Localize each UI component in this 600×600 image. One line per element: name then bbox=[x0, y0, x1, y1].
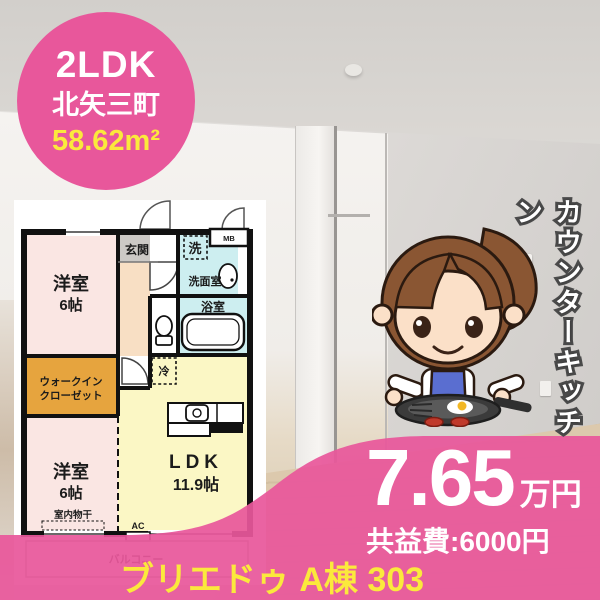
fried-egg-yolk bbox=[458, 402, 467, 411]
bedroom1-label: 洋室 bbox=[53, 273, 89, 294]
ac-box bbox=[126, 532, 150, 541]
location-name: 北矢三町 bbox=[52, 90, 160, 121]
indoor-drying-label: 室内物干 bbox=[54, 509, 93, 521]
eye-highlight bbox=[468, 320, 474, 326]
layout-type: 2LDK bbox=[56, 44, 157, 87]
eye-highlight bbox=[416, 320, 422, 326]
bedroom2-size: 6帖 bbox=[59, 484, 82, 502]
ear-left bbox=[372, 305, 392, 325]
bathroom-label: 浴室 bbox=[201, 299, 225, 314]
washroom-label: 洗面室 bbox=[189, 274, 222, 288]
rent-unit: 万円 bbox=[520, 469, 582, 514]
sink-icon bbox=[219, 264, 237, 288]
photo-left-wall-strip bbox=[0, 300, 14, 600]
washer-label: 洗 bbox=[188, 241, 201, 256]
shoe-left bbox=[425, 418, 443, 427]
floor-plan: 洋室 6帖 ウォークイン クローゼット 洋室 6帖 LDK 11.9帖 玄関 洗… bbox=[14, 200, 266, 585]
closet-label-line1: ウォークイン bbox=[40, 376, 103, 388]
meter-box-label: MB bbox=[223, 234, 235, 243]
hand-left bbox=[386, 389, 402, 405]
toilet-tank bbox=[156, 336, 172, 345]
closet-label-line2: クローゼット bbox=[40, 389, 103, 402]
shoe-right bbox=[451, 418, 469, 427]
smoke-detector-icon bbox=[345, 64, 362, 76]
bedroom2-label: 洋室 bbox=[53, 461, 89, 482]
ldk-size: 11.9帖 bbox=[173, 475, 219, 494]
property-listing-image[interactable]: 洋室 6帖 ウォークイン クローゼット 洋室 6帖 LDK 11.9帖 玄関 洗… bbox=[0, 0, 600, 600]
layout-badge: 2LDK 北矢三町 58.62m² bbox=[17, 12, 195, 190]
bedroom1-area bbox=[24, 232, 118, 356]
vertical-caption: カウンターキッチン bbox=[508, 198, 586, 458]
bedroom1-size: 6帖 bbox=[59, 296, 82, 314]
property-name: ブリエドゥ A棟 303 bbox=[120, 552, 424, 600]
rent-value: 7.65 bbox=[366, 438, 514, 518]
photo-sliding-door bbox=[295, 126, 337, 482]
floor-area: 58.62m² bbox=[52, 125, 160, 158]
entrance-label: 玄関 bbox=[125, 242, 149, 257]
toilet-icon bbox=[156, 316, 172, 336]
kitchen-counter bbox=[168, 403, 243, 436]
picture-rail bbox=[328, 214, 370, 217]
ac-label: AC bbox=[132, 521, 145, 531]
eye-right bbox=[465, 316, 483, 338]
ldk-label: LDK bbox=[169, 452, 223, 473]
fridge-label: 冷 bbox=[159, 364, 170, 378]
sink-drain bbox=[230, 278, 233, 281]
eye-left bbox=[413, 316, 431, 338]
